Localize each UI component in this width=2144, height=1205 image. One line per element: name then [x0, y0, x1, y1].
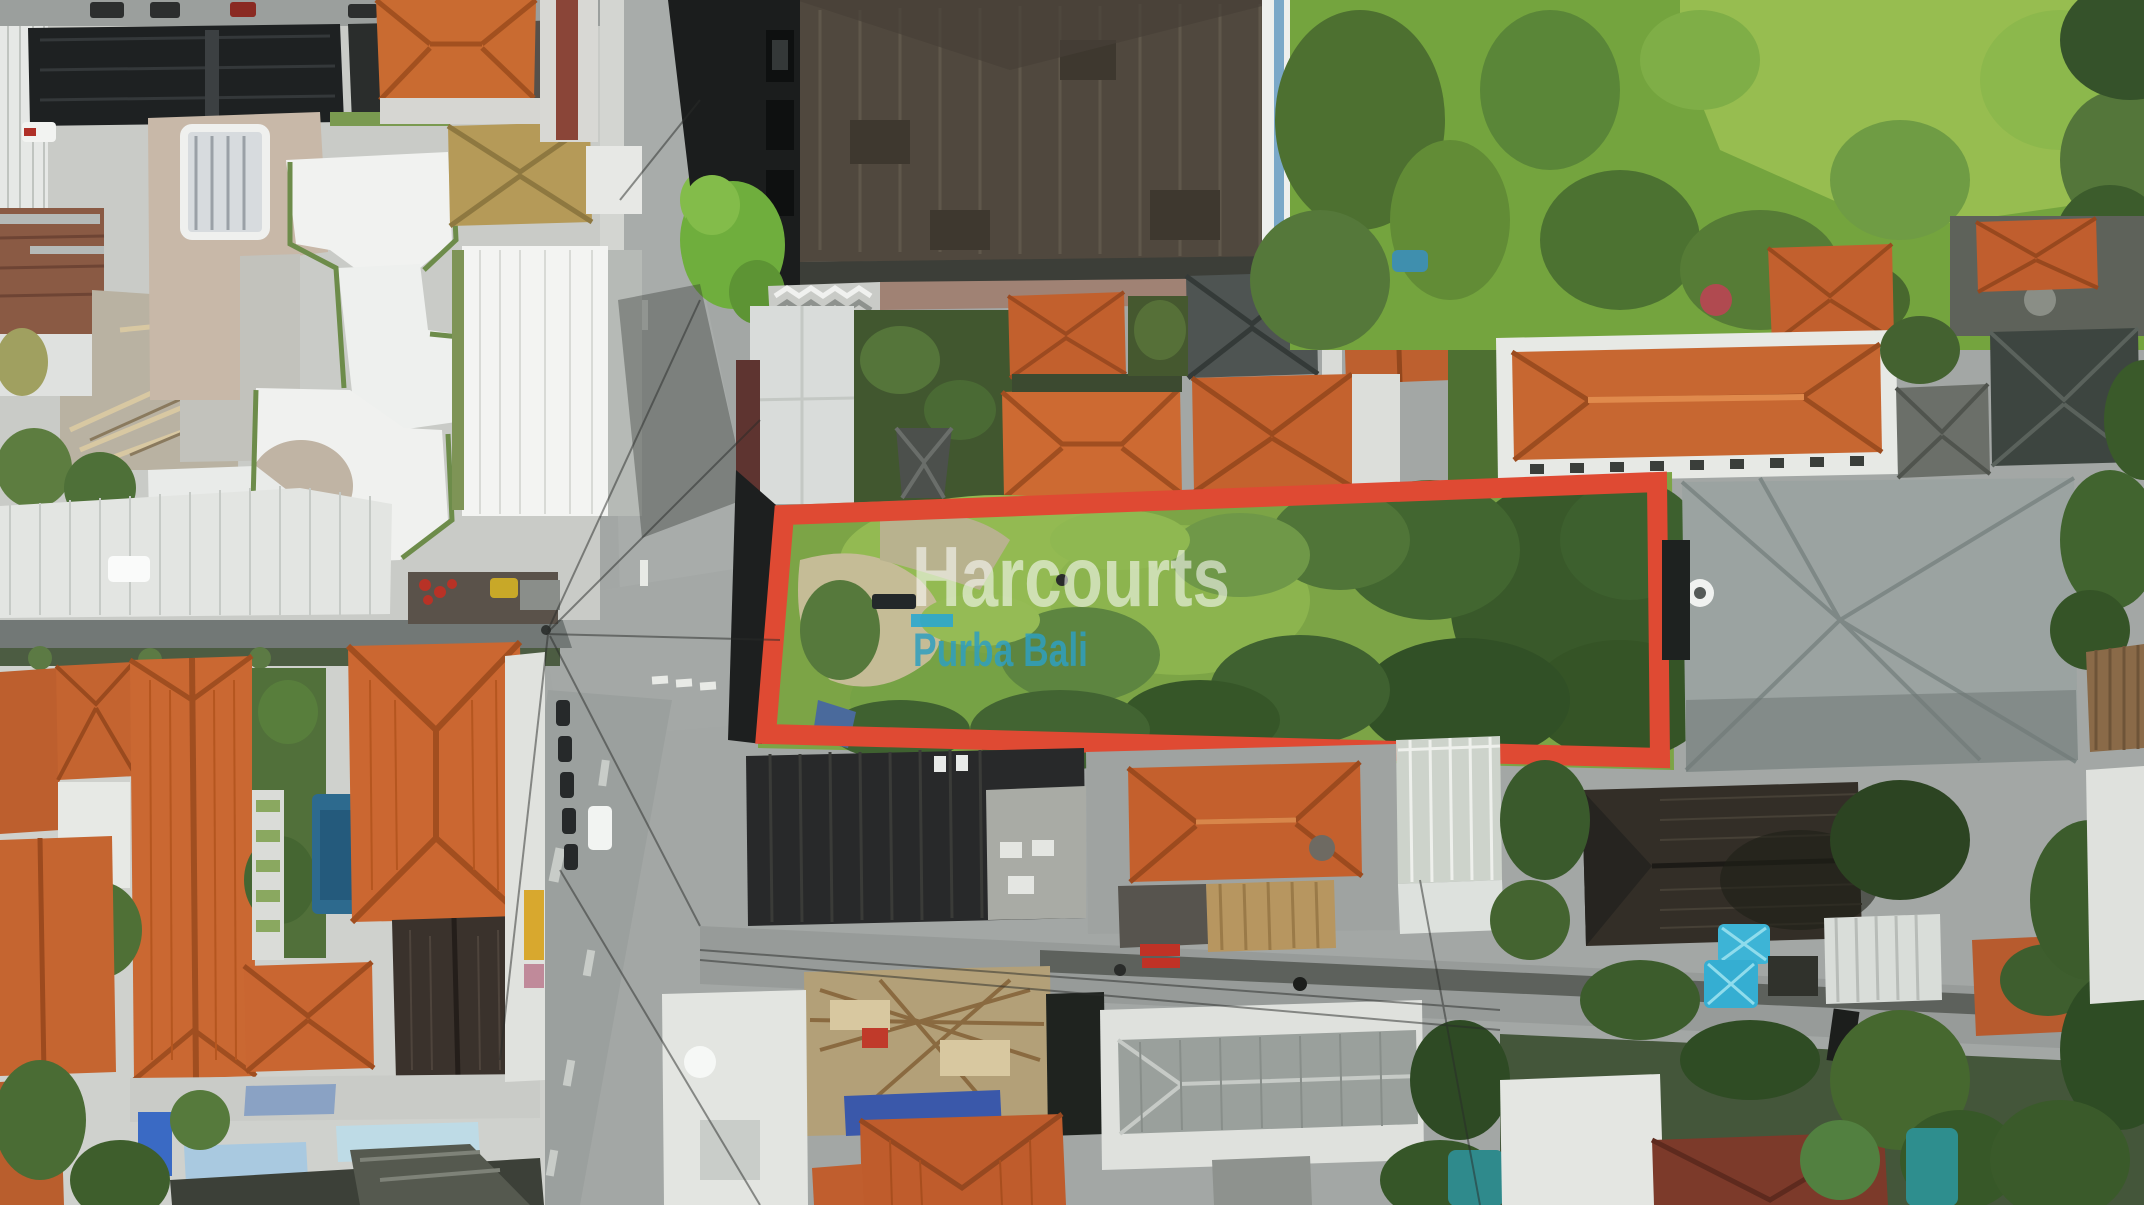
svg-text:Purba Bali: Purba Bali — [913, 623, 1088, 676]
svg-text:Harcourts: Harcourts — [912, 530, 1230, 625]
